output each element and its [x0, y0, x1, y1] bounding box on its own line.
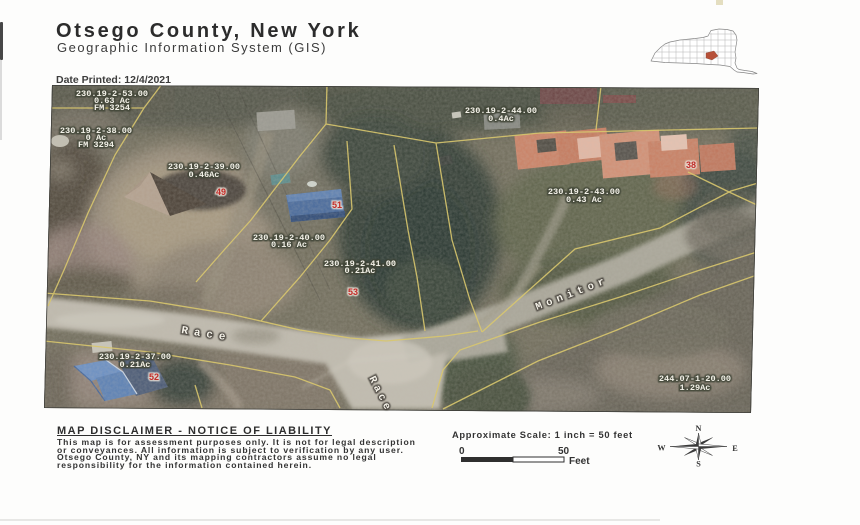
svg-text:N: N [696, 424, 702, 433]
svg-text:1.29Ac: 1.29Ac [680, 383, 711, 393]
svg-text:0.16 Ac: 0.16 Ac [271, 240, 307, 250]
svg-text:FM 3254: FM 3254 [94, 103, 130, 113]
svg-text:FM 3294: FM 3294 [78, 140, 114, 150]
svg-text:52: 52 [149, 372, 159, 382]
svg-text:38: 38 [686, 160, 696, 170]
svg-text:0.43 Ac: 0.43 Ac [566, 195, 602, 205]
svg-text:0: 0 [459, 446, 465, 457]
svg-text:50: 50 [558, 446, 570, 457]
svg-text:51: 51 [332, 200, 342, 210]
svg-text:0.46Ac: 0.46Ac [189, 170, 220, 180]
svg-text:49: 49 [216, 187, 226, 197]
svg-text:Feet: Feet [569, 456, 590, 467]
svg-text:E: E [732, 444, 738, 453]
svg-text:53: 53 [348, 287, 358, 297]
svg-text:S: S [696, 460, 701, 469]
svg-text:0.21Ac: 0.21Ac [120, 360, 151, 370]
svg-text:W: W [657, 444, 666, 453]
svg-text:0.21Ac: 0.21Ac [345, 266, 376, 276]
svg-text:0.4Ac: 0.4Ac [488, 114, 514, 124]
